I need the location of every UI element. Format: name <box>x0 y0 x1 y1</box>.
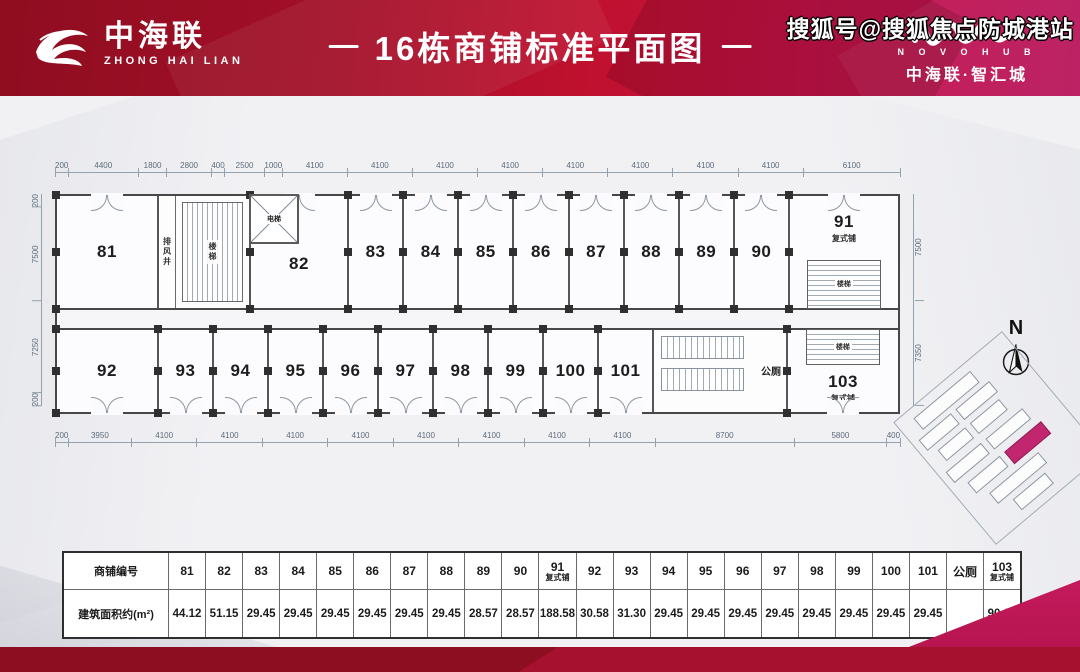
table-column: 82 51.15 <box>205 553 242 637</box>
dimension-value: 4100 <box>131 428 196 448</box>
stairwell: 楼梯 <box>182 202 243 302</box>
table-column: 94 29.45 <box>650 553 687 637</box>
door-arc <box>470 193 502 208</box>
stair-label: 楼梯 <box>835 279 853 289</box>
door-arc <box>610 400 642 415</box>
floor-plan: 2004400180028004002500100041004100410041… <box>55 158 900 448</box>
shop-id-cell: 100 <box>873 553 909 590</box>
shop-id-text: 86 <box>366 564 379 578</box>
door-arc <box>690 193 722 208</box>
shop-id-cell: 89 <box>465 553 501 590</box>
shop-number: 103 <box>828 372 858 391</box>
shop-unit: 84 <box>402 196 457 308</box>
logo-swirl-icon <box>30 16 94 72</box>
shop-92: 92 <box>57 330 157 412</box>
elevator: 电梯 <box>249 194 299 244</box>
area-cell: 30.58 <box>577 590 613 637</box>
zhonghailian-logo: 中海联 ZHONG HAI LIAN <box>30 16 243 72</box>
area-cell: 29.45 <box>799 590 835 637</box>
dimension-value: 1000 <box>264 158 282 178</box>
column-marker <box>429 367 437 375</box>
shop-number: 93 <box>176 361 196 381</box>
shop-sub-label: 复式铺 <box>790 233 898 244</box>
shop-unit: 99 <box>487 330 542 412</box>
shop-id-text: 101 <box>918 564 938 578</box>
page-title-wrap: 16栋商铺标准平面图 <box>329 22 752 70</box>
area-table: 商铺编号 建筑面积约(m²) 81 44.12 82 51.15 83 <box>62 551 1022 639</box>
dimension-value: 400 <box>887 428 900 448</box>
logo-text: 中海联 ZHONG HAI LIAN <box>104 21 243 67</box>
table-column: 90 28.57 <box>501 553 538 637</box>
column-marker <box>620 248 628 256</box>
area-cell: 29.45 <box>317 590 353 637</box>
title-dash-left <box>329 45 359 48</box>
watermark: 搜狐号@搜狐焦点防城港站 <box>787 10 1074 44</box>
shop-id-text: 89 <box>477 564 490 578</box>
logo-en: ZHONG HAI LIAN <box>104 55 243 67</box>
shop-id-text: 公厕 <box>953 563 977 580</box>
table-column: 100 29.45 <box>872 553 909 637</box>
shop-id-cell: 88 <box>428 553 464 590</box>
table-column: 87 29.45 <box>390 553 427 637</box>
dimension-value: 4100 <box>478 158 543 178</box>
shop-id-text: 87 <box>403 564 416 578</box>
area-cell: 51.15 <box>206 590 242 637</box>
shop-id-cell: 86 <box>354 553 390 590</box>
dimension-value: 4100 <box>412 158 477 178</box>
shops-row-bottom: 92 93 94 95 96 <box>55 328 900 414</box>
shop-id-text: 96 <box>736 564 749 578</box>
dimension-value: 200 <box>25 194 47 207</box>
shop-id-cell: 96 <box>725 553 761 590</box>
column-marker <box>730 248 738 256</box>
shop-unit: 93 <box>157 330 212 412</box>
shop-number: 88 <box>641 242 661 262</box>
table-column: 92 30.58 <box>576 553 613 637</box>
shop-id-cell: 81 <box>169 553 205 590</box>
dimension-value: 5800 <box>794 428 887 448</box>
logo-cn: 中海联 <box>104 21 243 53</box>
shop-id-text: 103 <box>992 560 1012 574</box>
site-map-group <box>906 344 1080 532</box>
column-marker <box>319 367 327 375</box>
dimension-value: 7500 <box>25 207 47 301</box>
dimension-value: 4100 <box>543 158 608 178</box>
dimension-value: 2800 <box>167 158 211 178</box>
shop-number: 86 <box>531 242 551 262</box>
column-marker <box>399 248 407 256</box>
door-arc <box>415 193 447 208</box>
shop-81: 81 <box>57 196 157 308</box>
table-column: 93 31.30 <box>613 553 650 637</box>
dimension-value: 3950 <box>68 428 131 448</box>
dimension-line-bottom: 2003950410041004100410041004100410041008… <box>55 428 900 448</box>
shop-id-wrap: 103 复式铺 <box>788 372 898 404</box>
area-cell: 44.12 <box>169 590 205 637</box>
shop-id-cell: 91 复式铺 <box>539 553 575 590</box>
door-arc <box>827 400 859 415</box>
dimension-value: 8700 <box>655 428 794 448</box>
column-marker <box>246 248 254 256</box>
shop-82: 电梯 82 <box>249 196 347 308</box>
area-cell: 29.45 <box>428 590 464 637</box>
exhaust-label: 排风井 <box>162 235 173 269</box>
shop-id-text: 100 <box>881 564 901 578</box>
shop-id-cell: 83 <box>243 553 279 590</box>
column-marker <box>52 248 60 256</box>
door-arc <box>828 193 860 208</box>
shop-number: 81 <box>97 242 117 262</box>
dimension-value: 4100 <box>328 428 393 448</box>
dimension-value: 2500 <box>225 158 265 178</box>
shop-unit: 90 <box>733 196 788 308</box>
shop-id-text: 98 <box>810 564 823 578</box>
dimension-value: 4100 <box>347 158 412 178</box>
shop-103-duplex: 103 复式铺 楼梯 <box>786 330 898 412</box>
stair-label: 楼梯 <box>834 342 852 352</box>
door-arc <box>225 400 257 415</box>
toilet-stalls <box>661 336 745 359</box>
column-marker <box>785 248 793 256</box>
door-arc <box>91 400 123 415</box>
dimension-value: 200 <box>55 158 68 178</box>
shop-id-cell: 85 <box>317 553 353 590</box>
column-marker <box>154 367 162 375</box>
shop-id-text: 95 <box>699 564 712 578</box>
site-map <box>922 352 1078 530</box>
shop-unit: 86 <box>512 196 567 308</box>
area-cell: 29.45 <box>354 590 390 637</box>
page: 中海联 ZHONG HAI LIAN 16栋商铺标准平面图 N O V O H … <box>0 0 1080 672</box>
brand-en: N O V O H U B <box>882 47 1052 57</box>
table-column: 98 29.45 <box>798 553 835 637</box>
shop-unit: 87 <box>568 196 623 308</box>
shop-sub-text: 复式铺 <box>545 574 569 582</box>
dimension-value: 4100 <box>393 428 458 448</box>
footer-band <box>0 647 1080 672</box>
shop-id-cell: 92 <box>577 553 613 590</box>
column-marker <box>484 367 492 375</box>
dimension-value: 7250 <box>25 302 47 393</box>
shop-number: 84 <box>421 242 441 262</box>
dimension-value: 4100 <box>590 428 655 448</box>
shop-id-text: 93 <box>625 564 638 578</box>
shop-number: 97 <box>396 361 416 381</box>
shop-number: 85 <box>476 242 496 262</box>
dimension-value: 400 <box>211 158 224 178</box>
shop-id-cell: 101 <box>910 553 946 590</box>
shop-id-text: 90 <box>514 564 527 578</box>
door-arc <box>445 400 477 415</box>
area-cell: 29.45 <box>280 590 316 637</box>
shop-number: 98 <box>451 361 471 381</box>
shop-unit: 97 <box>377 330 432 412</box>
shop-id-text: 97 <box>773 564 786 578</box>
shop-id-cell: 84 <box>280 553 316 590</box>
shop-unit: 83 <box>347 196 402 308</box>
dimension-value: 4100 <box>282 158 347 178</box>
shop-id-text: 85 <box>329 564 342 578</box>
area-cell: 29.45 <box>873 590 909 637</box>
dimension-line-left: 20075007250200 <box>25 194 47 406</box>
shop-number: 99 <box>506 361 526 381</box>
shop-id-text: 88 <box>440 564 453 578</box>
table-column: 91 复式铺 188.58 <box>538 553 575 637</box>
stairs-box: 楼梯 <box>807 260 880 309</box>
stair-label: 楼梯 <box>207 240 218 264</box>
table-column: 85 29.45 <box>316 553 353 637</box>
shop-id-cell: 公厕 <box>947 553 983 590</box>
area-cell: 188.58 <box>539 590 575 637</box>
shop-unit: 88 <box>623 196 678 308</box>
shop-number: 96 <box>341 361 361 381</box>
dimension-value: 4100 <box>262 428 327 448</box>
area-cell: 29.45 <box>910 590 946 637</box>
shop-unit: 98 <box>432 330 487 412</box>
door-arc <box>390 400 422 415</box>
column-marker <box>783 367 791 375</box>
shop-unit: 94 <box>212 330 267 412</box>
shop-number: 90 <box>751 242 771 262</box>
door-arc <box>360 193 392 208</box>
table-column: 99 29.45 <box>835 553 872 637</box>
shop-id-text: 83 <box>254 564 267 578</box>
shops-row-top: 81 排风井 楼梯 电梯 82 83 <box>55 194 900 310</box>
dimension-value: 4100 <box>608 158 673 178</box>
door-arc <box>525 193 557 208</box>
table-column: 86 29.45 <box>353 553 390 637</box>
dimension-value: 4100 <box>459 428 524 448</box>
door-arc <box>500 400 532 415</box>
shop-unit: 100 <box>542 330 597 412</box>
shop-id-cell: 94 <box>651 553 687 590</box>
area-cell: 29.45 <box>243 590 279 637</box>
shop-id-text: 82 <box>217 564 230 578</box>
utility-core: 排风井 楼梯 <box>157 196 249 308</box>
shop-number: 92 <box>97 361 117 381</box>
row-label-area: 建筑面积约(m²) <box>64 590 168 637</box>
area-cell: 28.57 <box>465 590 501 637</box>
dimension-value: 1800 <box>138 158 167 178</box>
toilet-stalls <box>661 368 745 391</box>
shop-number: 82 <box>289 254 309 274</box>
table-header-column: 商铺编号 建筑面积约(m²) <box>64 553 168 637</box>
shop-id-cell: 99 <box>836 553 872 590</box>
door-arc <box>580 193 612 208</box>
table-column: 84 29.45 <box>279 553 316 637</box>
exhaust-shaft: 排风井 <box>159 196 176 308</box>
dimension-value: 7500 <box>908 194 930 301</box>
mid-corridor <box>55 310 900 328</box>
shop-number: 94 <box>231 361 251 381</box>
shop-number: 89 <box>696 242 716 262</box>
dimension-line-top: 2004400180028004002500100041004100410041… <box>55 158 900 178</box>
table-column: 89 28.57 <box>464 553 501 637</box>
dimension-value: 4100 <box>197 428 262 448</box>
shop-id-cell: 82 <box>206 553 242 590</box>
dimension-value: 4100 <box>524 428 589 448</box>
stairs-box: 楼梯 <box>806 329 881 365</box>
row-label-id: 商铺编号 <box>64 553 168 590</box>
table-column: 96 29.45 <box>724 553 761 637</box>
column-marker <box>374 367 382 375</box>
shop-number: 87 <box>586 242 606 262</box>
shop-number: 91 <box>834 212 854 231</box>
shop-id-cell: 97 <box>762 553 798 590</box>
table-column: 97 29.45 <box>761 553 798 637</box>
shop-unit: 85 <box>457 196 512 308</box>
shop-id-wrap: 91 复式铺 <box>790 212 898 244</box>
dimension-value: 6100 <box>803 158 900 178</box>
page-title: 16栋商铺标准平面图 <box>375 22 706 70</box>
dimension-value: 200 <box>25 393 47 406</box>
door-arc <box>635 193 667 208</box>
area-cell: 28.57 <box>502 590 538 637</box>
dimension-value: 4100 <box>738 158 803 178</box>
shop-id-text: 92 <box>588 564 601 578</box>
door-arc <box>745 193 777 208</box>
column-marker <box>264 367 272 375</box>
shop-number: 95 <box>286 361 306 381</box>
column-marker <box>209 367 217 375</box>
door-arc <box>280 400 312 415</box>
shop-91-duplex: 91 复式铺 楼梯 <box>788 196 898 308</box>
shop-unit: 101 <box>597 330 652 412</box>
table-column: 81 44.12 <box>168 553 205 637</box>
dimension-value: 200 <box>55 428 68 448</box>
toilet-label: 公厕 <box>761 363 781 378</box>
brand-cn: 中海联·智汇城 <box>882 61 1052 85</box>
column-marker <box>344 248 352 256</box>
column-marker <box>565 248 573 256</box>
area-cell: 29.45 <box>391 590 427 637</box>
shop-id-cell: 98 <box>799 553 835 590</box>
column-marker <box>594 367 602 375</box>
door-arc <box>170 400 202 415</box>
shop-unit: 89 <box>678 196 733 308</box>
dimension-value: 4100 <box>673 158 738 178</box>
shop-id-text: 81 <box>180 564 193 578</box>
public-toilet: 公厕 <box>652 330 786 412</box>
shop-id-text: 94 <box>662 564 675 578</box>
table-column: 83 29.45 <box>242 553 279 637</box>
area-cell: 31.30 <box>614 590 650 637</box>
column-marker <box>675 248 683 256</box>
area-cell: 29.45 <box>725 590 761 637</box>
door-arc <box>335 400 367 415</box>
column-marker <box>454 248 462 256</box>
column-marker <box>52 367 60 375</box>
shop-number: 83 <box>366 242 386 262</box>
shop-id-cell: 103 复式铺 <box>984 553 1020 590</box>
shop-id-cell: 95 <box>688 553 724 590</box>
table-column: 88 29.45 <box>427 553 464 637</box>
shop-sub-text: 复式铺 <box>990 574 1014 582</box>
shop-number: 101 <box>611 361 641 381</box>
area-cell: 29.45 <box>651 590 687 637</box>
door-arc <box>91 193 123 208</box>
title-dash-right <box>721 45 751 48</box>
shop-id-text: 84 <box>291 564 304 578</box>
shop-id-cell: 93 <box>614 553 650 590</box>
column-marker <box>509 248 517 256</box>
area-cell: 29.45 <box>836 590 872 637</box>
elevator-label: 电梯 <box>266 214 282 224</box>
area-cell: 29.45 <box>688 590 724 637</box>
table-column: 101 29.45 <box>909 553 946 637</box>
shop-id-text: 99 <box>847 564 860 578</box>
table-column: 95 29.45 <box>687 553 724 637</box>
shop-unit: 96 <box>322 330 377 412</box>
area-cell: 29.45 <box>762 590 798 637</box>
shop-id-text: 91 <box>551 560 564 574</box>
shop-number: 100 <box>556 361 586 381</box>
shop-id-cell: 87 <box>391 553 427 590</box>
dimension-value: 4400 <box>68 158 138 178</box>
shop-unit: 95 <box>267 330 322 412</box>
door-arc <box>555 400 587 415</box>
shop-id-cell: 90 <box>502 553 538 590</box>
column-marker <box>539 367 547 375</box>
